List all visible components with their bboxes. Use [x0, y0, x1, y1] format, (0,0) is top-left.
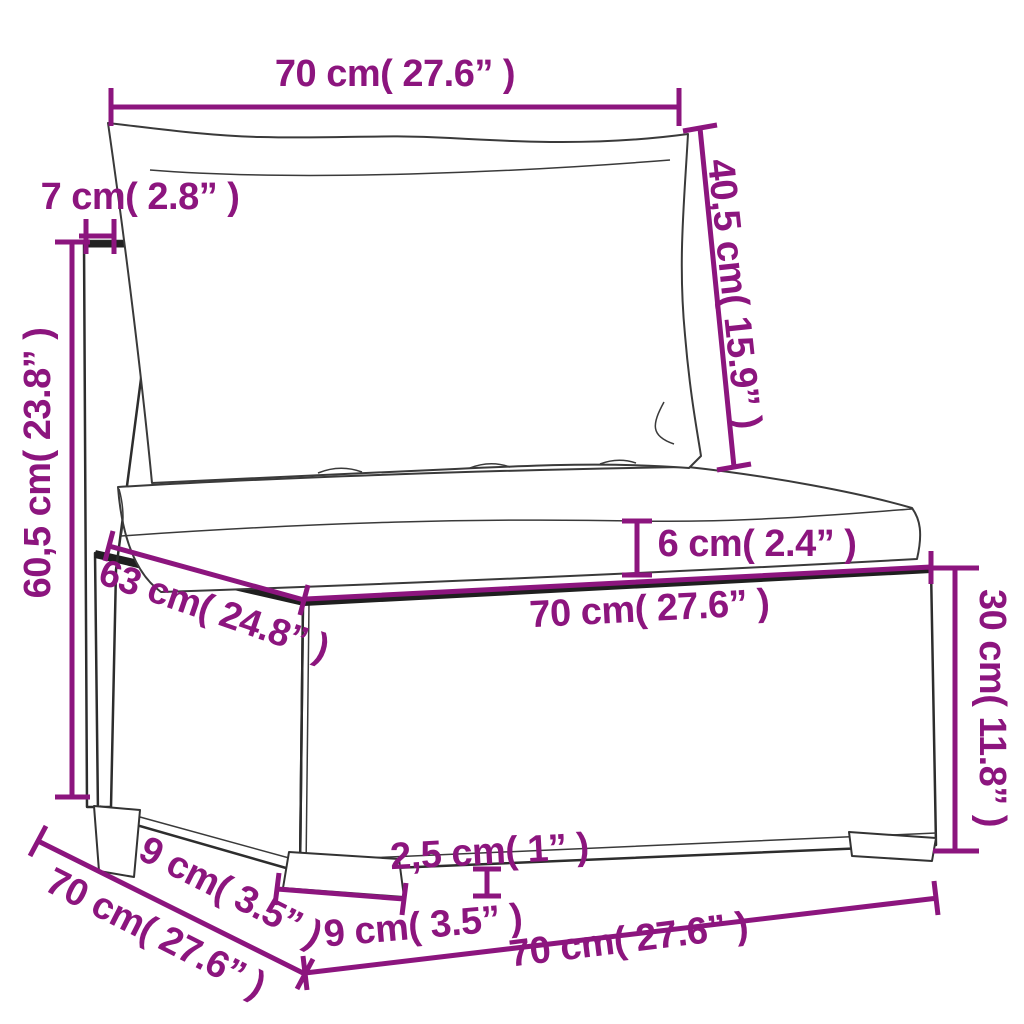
dim-total-height: 60,5 cm( 23.8” ): [17, 242, 90, 797]
dim-back-thickness-label: 7 cm( 2.8” ): [41, 176, 240, 218]
dim-base-height: 30 cm( 11.8” ): [933, 568, 1013, 851]
dim-top-width-label: 70 cm( 27.6” ): [275, 53, 515, 95]
foot-front-right: [849, 832, 936, 861]
dimension-diagram-page: 70 cm( 27.6” ) 7 cm( 2.8” ) 40,5 cm( 15.…: [0, 0, 1024, 1024]
sofa-dimension-diagram: 70 cm( 27.6” ) 7 cm( 2.8” ) 40,5 cm( 15.…: [0, 0, 1024, 1024]
dim-base-height-label: 30 cm( 11.8” ): [971, 589, 1013, 827]
dim-bottom-width-label: 70 cm( 27.6” ): [507, 905, 750, 976]
dim-back-height-label: 40,5 cm( 15.9” ): [699, 157, 769, 431]
dim-total-height-label: 60,5 cm( 23.8” ): [17, 328, 59, 599]
dim-line: [79, 219, 114, 254]
foot-side: [94, 806, 140, 877]
dim-top-width: 70 cm( 27.6” ): [111, 53, 679, 126]
dim-foot-width-label: 9 cm( 3.5” ): [322, 896, 524, 955]
dim-foot-height: 2,5 cm( 1” ): [389, 826, 590, 896]
sofa-sketch: [83, 123, 936, 897]
dim-foot-height-label: 2,5 cm( 1” ): [389, 826, 590, 878]
dim-cushion-thickness-label: 6 cm( 2.4” ): [658, 523, 857, 565]
